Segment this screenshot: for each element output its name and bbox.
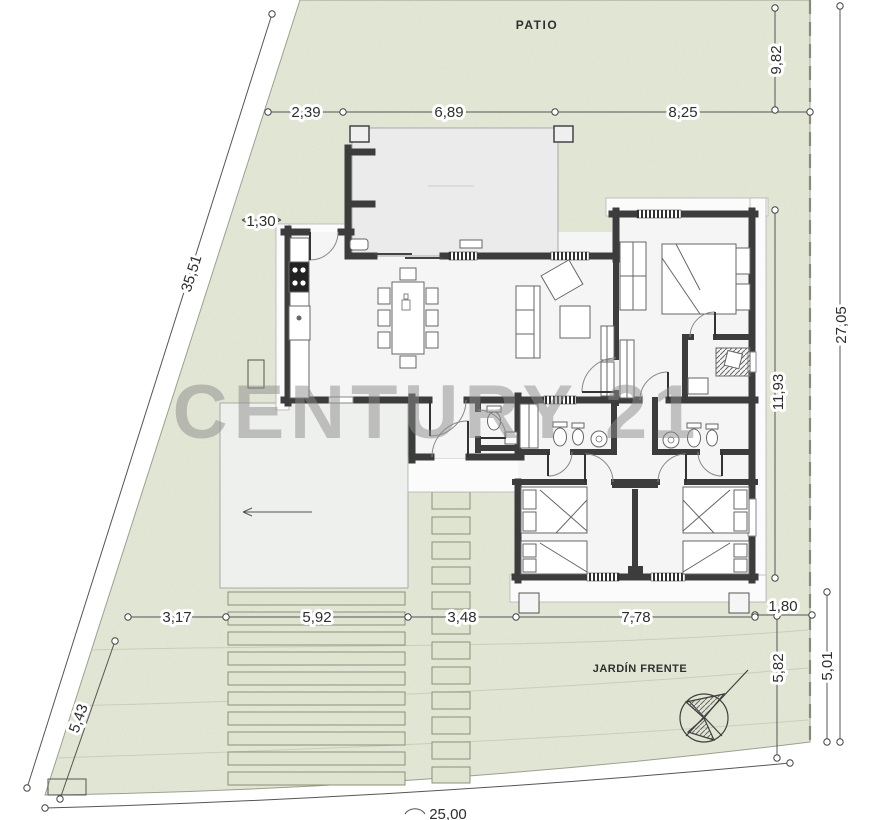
watermark: CENTURY 21	[173, 370, 702, 455]
bidet-icon	[707, 430, 718, 446]
floor-plan-svg: CENTURY 21 2,39 6,89 8,25 9,82 11,93 2	[0, 0, 880, 820]
pillow	[736, 284, 750, 310]
dim-frontage-total: 25,00	[429, 806, 467, 820]
dim-front-right: 5,01	[819, 651, 836, 680]
dim-front-depth: 5,82	[770, 653, 787, 682]
dim-bottom-2: 5,92	[302, 609, 331, 626]
window-living-1	[449, 252, 477, 260]
covered-terrace	[350, 126, 573, 256]
floor-plan-canvas: CENTURY 21 2,39 6,89 8,25 9,82 11,93 2	[0, 0, 880, 820]
dim-top-right: 8,25	[668, 104, 697, 121]
dim-right-total: 27,05	[833, 306, 850, 344]
master-bed	[662, 244, 736, 314]
patio-label: PATIO	[516, 18, 558, 32]
terrace-pillar	[350, 126, 369, 142]
pillow	[736, 248, 750, 274]
stove-icon	[289, 262, 309, 292]
dining-table	[392, 282, 424, 354]
window-living-2	[551, 252, 589, 260]
dim-bottom-5: 1,80	[768, 598, 797, 615]
dim-top-middle: 6,89	[434, 104, 463, 121]
window-bedroom3	[587, 573, 619, 581]
window-bedroom2	[651, 573, 685, 581]
jardin-frente-label: JARDÍN FRENTE	[593, 662, 688, 675]
dim-right-middle: 11,93	[770, 374, 787, 410]
kitchen-sink-icon	[289, 306, 310, 340]
sofa	[516, 286, 540, 358]
terrace-pillar	[554, 126, 573, 142]
pillow	[523, 490, 536, 509]
dim-bottom-1: 3,17	[162, 609, 191, 626]
window-master	[637, 210, 681, 218]
dim-right-top: 9,82	[768, 45, 785, 74]
dim-side-setback: 1,30	[246, 213, 275, 230]
pillow	[523, 512, 536, 531]
dim-bottom-3: 3,48	[447, 609, 476, 626]
coffee-table	[560, 306, 590, 338]
dim-top-left: 2,39	[291, 104, 320, 121]
dim-bottom-4: 7,78	[621, 609, 650, 626]
tv-unit	[460, 240, 482, 248]
kitchen-bench	[350, 239, 368, 250]
